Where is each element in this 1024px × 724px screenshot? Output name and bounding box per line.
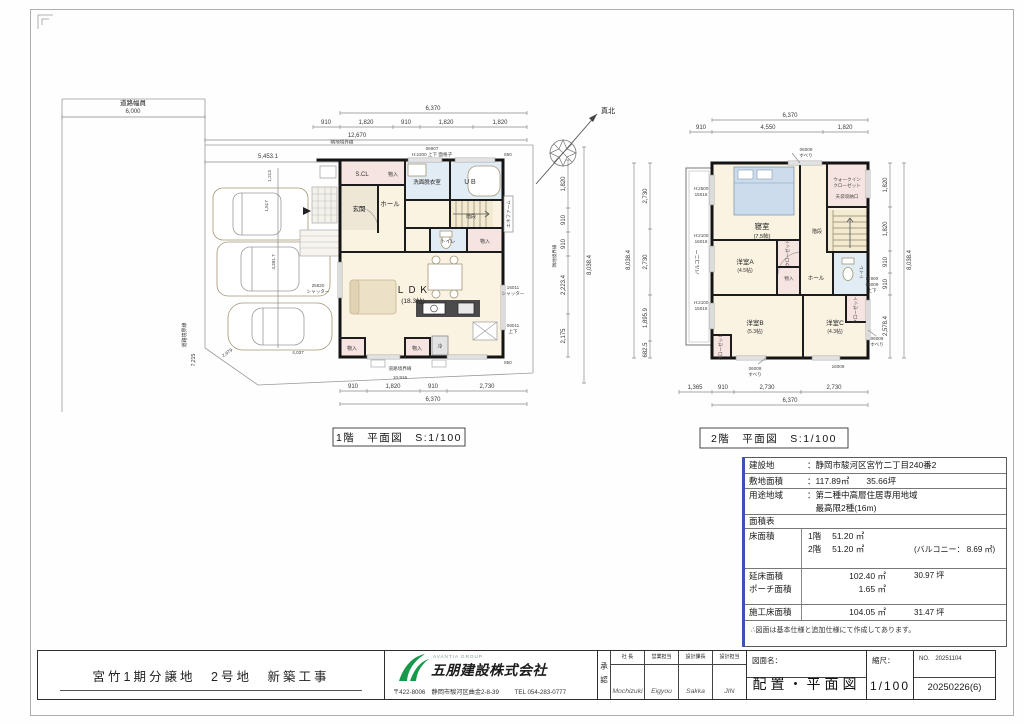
svg-text:6,370: 6,370 [425,397,441,403]
svg-text:910: 910 [696,125,707,131]
approval-label-cell: 承認 [597,651,610,699]
f1-window-right1b: シャッター [502,290,525,297]
floor2-dim-top: 6,370 910 4,550 1,820 [690,113,868,134]
room-a-size: (4.5帖) [737,267,753,274]
svg-text:2,730: 2,730 [479,384,495,390]
row-value: ：静岡市駿河区宮竹二丁目240番2 [801,461,1006,470]
svg-text:2,730: 2,730 [759,385,775,391]
svg-text:すべり: すべり [870,341,883,348]
scale-value: 1/100 [867,679,913,693]
floor2-dim-right: 1,820 1,820 910 910 2,578.4 8,038.4 [883,163,913,358]
svg-text:1,895.9: 1,895.9 [643,307,649,328]
room-tenbukuro: 天袋収納口 [836,193,859,200]
project-underline [60,690,362,691]
table-row: 床面積 1階 51.20 ㎡ [745,529,1006,543]
no-label: NO. 20251104 [919,656,962,662]
approval-label: 承認 [598,651,610,699]
f1-window-spec-top: H:2200 上下 面格子 [412,151,453,158]
svg-text:2,223.4: 2,223.4 [561,274,567,295]
row-value: 2階 51.20 ㎡ [802,545,914,554]
north-compass: 真北 [536,106,615,184]
svg-text:4,550: 4,550 [760,125,776,131]
approval-role: 設計担当 [713,653,746,660]
svg-text:1,820: 1,820 [883,221,889,237]
car-length-dim: 5,453.1 [258,154,279,160]
scale-cell: 縮尺： 1/100 [866,651,913,699]
project-name-cell: 宮竹1期分譲地 2号地 新築工事 [38,651,384,699]
room-hall2: ホール [808,275,825,282]
car-1 [213,188,308,240]
svg-text:910: 910 [718,385,729,391]
room-closet-a: クローゼット [784,239,791,267]
row-label [745,556,802,568]
room-closet-c: クローゼット [852,296,859,324]
svg-text:1,820: 1,820 [561,176,567,192]
number-cell: NO. 20251104 20250226(6) [913,651,995,699]
svg-text:8,038.4: 8,038.4 [907,249,913,270]
road-width-value: 6,000 [125,109,141,115]
scale-label: 縮尺： [872,655,895,666]
svg-text:06009: 06009 [871,336,884,341]
table-row: ポーチ面積 1.65 ㎡ [745,583,1006,596]
approval-col: 設計担当 JIN [712,651,746,699]
road-boundary-left-dim: 7,215 [191,354,197,367]
drawing-name: 配置・平面図 [747,674,866,694]
address-text: 〒422-8006 静岡市駿河区曲金2-8-39 [393,689,499,696]
floor1-dim-top: 6,370 910 1,820 910 1,820 1,820 12,670 隣… [205,106,527,146]
floor1-caption: 1階 平面図 S:1/100 [333,428,465,446]
table-row: 建設地 ：静岡市駿河区宮竹二丁目240番2 [745,458,1006,474]
svg-text:2,730: 2,730 [643,188,649,204]
floor1-dim-bottom: 道路境界線 10,916 910 1,820 910 2,730 6,370 [340,365,527,406]
company-name: 五朋建設株式会社 [431,660,547,680]
table-row: 最高限2種(16m) [745,502,1006,515]
row-value: 最高限2種(16m) [801,504,1006,513]
svg-text:910: 910 [321,120,332,126]
svg-text:16018: 16018 [695,239,708,244]
row-value: 102.40 ㎡ [802,572,914,581]
room-mono: 物入 [784,275,794,282]
drawing-sheet: 道路幅員 6,000 道路境界線 7,215 5,453.1 1,213 1,5… [0,0,1024,724]
row-label: 用途地域 [745,491,801,500]
row-label: 面積表 [745,517,801,526]
table-spacer-row [745,596,1006,605]
svg-text:682.5: 682.5 [643,342,649,358]
row-value: 104.05 ㎡ [802,608,914,617]
row-label [745,543,802,556]
approval-grid: 社 長 Mochizuki 営業担当 Eigyou 設計課長 Sakka 設計担… [610,651,746,699]
diag-boundary-dim: 2,979 [221,347,234,358]
room-mono3: 物入 [347,345,357,352]
adj-boundary-top-label: 隣地境界線 [331,139,354,146]
car-width-dim-1: 1,213 [267,170,272,182]
road-boundary-left-label: 道路境界線 [181,322,188,347]
row-extra: (バルコニー： 8.69 ㎡) [914,546,1006,554]
svg-text:15018: 15018 [695,192,708,197]
row-value: ：117.89㎡ 35.66坪 [801,477,1006,486]
room-genkan: 玄関 [353,204,366,213]
table-row: 敷地面積 ：117.89㎡ 35.66坪 [745,474,1006,489]
room-ub: ＵＢ [464,179,477,186]
svg-text:H:2100: H:2100 [694,233,709,238]
svg-text:H:2500: H:2500 [694,186,709,191]
room-toilet: トイレ [440,239,455,245]
car-3 [228,303,332,350]
divider [611,664,644,665]
room-c-size: (4.3帖) [827,328,843,335]
room-mono2: 物入 [480,238,490,245]
group-name: AVANTIA GROUP [433,654,483,659]
table-row: 施工床面積 104.05 ㎡ 31.47 坪 [745,605,1006,621]
row-label: 建設地 [745,461,801,470]
svg-text:06009: 06009 [800,147,813,152]
svg-text:すべり: すべり [748,371,761,378]
approval-name: JIN [713,688,746,695]
f1-window-code-top: 06907 [426,146,439,151]
svg-text:910: 910 [561,238,567,249]
table-row: 用途地域 ：第二種中高層住居専用地域 [745,489,1006,502]
svg-text:上下: 上下 [867,287,877,294]
svg-text:16009: 16009 [832,364,845,369]
room-closet-b: クローゼット [717,333,724,361]
drawing-name-label: 図面名： [752,655,782,666]
room-b-size: (5.3帖) [747,328,763,335]
room-c: 洋室C [826,318,844,327]
svg-text:2,730: 2,730 [643,254,649,270]
svg-text:H:2100: H:2100 [694,300,709,305]
svg-text:910: 910 [348,384,359,390]
row-label: 床面積 [745,529,802,543]
road-width-label: 道路幅員 [120,98,147,107]
svg-text:6,370: 6,370 [782,113,798,119]
road-boundary-bottom-label: 道路境界線 [389,365,412,372]
approval-role: 社 長 [611,653,644,660]
room-bedroom: 寝室 [755,221,770,231]
svg-text:06009: 06009 [866,282,879,287]
approval-role: 営業担当 [645,653,678,660]
row-label: 敷地面積 [745,477,801,486]
company-address: 〒422-8006 静岡市駿河区曲金2-8-39 TEL 054-283-077… [393,687,566,696]
revision-code: 20250226(6) [914,682,995,693]
svg-text:910: 910 [401,120,412,126]
svg-text:8,038.4: 8,038.4 [626,249,632,270]
row-label: 施工床面積 [745,605,802,620]
row-label: 延床面積 [745,569,802,583]
f1-window-right2b: 上下 [508,328,518,335]
svg-text:06009: 06009 [749,366,762,371]
room-hall: ホール [380,200,400,208]
floor1-dim-right: 850 850 隣地境界線 1,820 910 910 2,223.4 2,17… [504,147,593,383]
divider [645,664,678,665]
tel-text: TEL 054-283-0777 [515,689,566,696]
approval-name: Eigyou [645,688,678,695]
row-value: 1階 51.20 ㎡ [802,532,1006,541]
divider [713,664,746,665]
drawing-name-cell: 図面名： 配置・平面図 [746,651,866,699]
svg-text:2,730: 2,730 [826,385,842,391]
approval-col: 営業担当 Eigyou [644,651,678,699]
svg-text:1,820: 1,820 [358,120,374,126]
row-extra: 31.47 坪 [914,609,1006,617]
svg-text:15018: 15018 [695,306,708,311]
table-row: 2階 51.20 ㎡ (バルコニー： 8.69 ㎡) [745,543,1006,556]
svg-text:1,820: 1,820 [883,177,889,193]
row-extra: 30.97 坪 [914,572,1006,580]
table-spacer-row [745,556,1006,569]
room-mono4: 物入 [412,345,422,352]
room-scl: S.CL [355,172,369,178]
avantia-logo-icon [395,653,431,683]
room-a: 洋室A [736,257,754,266]
park-depth-dim: 4,391.7 [271,254,276,270]
svg-text:2,175: 2,175 [561,328,567,344]
project-name: 宮竹1期分譲地 2号地 新築工事 [93,666,330,685]
room-b: 洋室B [746,318,763,327]
row-value: 1.65 ㎡ [802,585,914,594]
adj-boundary-right-label: 隣地境界線 [551,244,558,267]
divider [679,664,712,665]
north-label: 真北 [601,106,615,115]
entrance-approach [300,166,340,256]
svg-text:910: 910 [883,278,889,289]
svg-text:H:900: H:900 [866,276,879,281]
svg-text:910: 910 [428,384,439,390]
svg-text:8,038.4: 8,038.4 [587,254,593,275]
room-wic-2: クローゼット [833,182,861,189]
approval-col: 設計課長 Sakka [678,651,712,699]
park-bottom-dim: 4,037 [292,350,304,355]
svg-text:6,370: 6,370 [782,398,798,404]
no-label-text: NO. [919,656,930,662]
room-senmen: 洗面脱衣室 [413,178,441,186]
svg-text:910: 910 [561,214,567,225]
table-note: ∴図面は基本仕様と追加仕様にて作成してあります。 [745,621,1006,634]
floor2-dim-bottom: 1,365 910 2,730 2,730 6,370 [679,385,868,407]
svg-text:850: 850 [504,360,512,365]
table-row: 面積表 [745,515,1006,529]
approval-role: 設計課長 [679,653,712,660]
svg-text:1,820: 1,820 [492,120,508,126]
approval-name: Sakka [679,688,712,695]
row-label: ポーチ面積 [745,583,802,596]
svg-text:2階 平面図 S:1/100: 2階 平面図 S:1/100 [711,433,837,445]
svg-text:1,820: 1,820 [385,384,401,390]
balcony-label: バルコニー [695,250,701,275]
room-mono1: 物入 [388,171,398,178]
svg-text:すべり: すべり [799,152,812,159]
road-boundary-bottom-dim: 10,916 [393,375,407,380]
fridge-label: 冷 [437,343,442,350]
room-stairs: 階段 [466,213,476,220]
title-block: 宮竹1期分譲地 2号地 新築工事 AVANTIA GROUP 五朋建設株式会社 … [37,650,996,700]
floor2-dim-left: 2,730 2,730 1,895.9 682.5 8,038.4 [626,163,652,358]
shutter-code: 25620 [312,283,325,288]
shutter-label: シャッター [307,288,330,295]
room-ldk: ＬＤＫ [396,285,431,296]
svg-text:1,820: 1,820 [837,125,853,131]
room-wic-1: ウォークイン [833,176,861,183]
room-toilet2: トイレ [859,265,864,279]
row-value: ：第二種中高層住居専用地域 [801,491,1006,500]
room-ldk-size: (18.3帖) [401,296,424,305]
svg-text:1,820: 1,820 [438,120,454,126]
svg-text:6,370: 6,370 [425,106,441,112]
approval-name: Mochizuki [611,688,644,695]
divider [914,677,995,678]
svg-text:2,578.4: 2,578.4 [883,315,889,336]
room-bedroom-size: (7.5帖) [754,232,771,240]
car-width-dim-2: 1,517 [264,200,269,212]
svg-text:12,670: 12,670 [348,133,367,139]
floor2-caption: 2階 平面図 S:1/100 [700,428,848,448]
f1-window-right2: 06011 [507,323,520,328]
row-label [745,596,802,604]
svg-text:1,365: 1,365 [687,385,703,391]
area-info-table: 建設地 ：静岡市駿河区宮竹二丁目240番2 敷地面積 ：117.89㎡ 35.6… [742,457,1007,647]
approval-col: 社 長 Mochizuki [610,651,644,699]
north-arrow-icon [589,114,597,122]
svg-text:850: 850 [504,152,512,157]
svg-text:910: 910 [883,256,889,267]
no-value: 20251104 [935,656,961,662]
company-cell: AVANTIA GROUP 五朋建設株式会社 〒422-8006 静岡市駿河区曲… [384,651,597,699]
room-stairs2: 階段 [812,228,822,235]
road-width-dimension: 道路幅員 6,000 [62,98,205,119]
svg-text:1階 平面図 S:1/100: 1階 平面図 S:1/100 [336,432,462,444]
table-row: 延床面積 102.40 ㎡ 30.97 坪 [745,569,1006,583]
f1-window-right1: 16011 [507,285,520,290]
